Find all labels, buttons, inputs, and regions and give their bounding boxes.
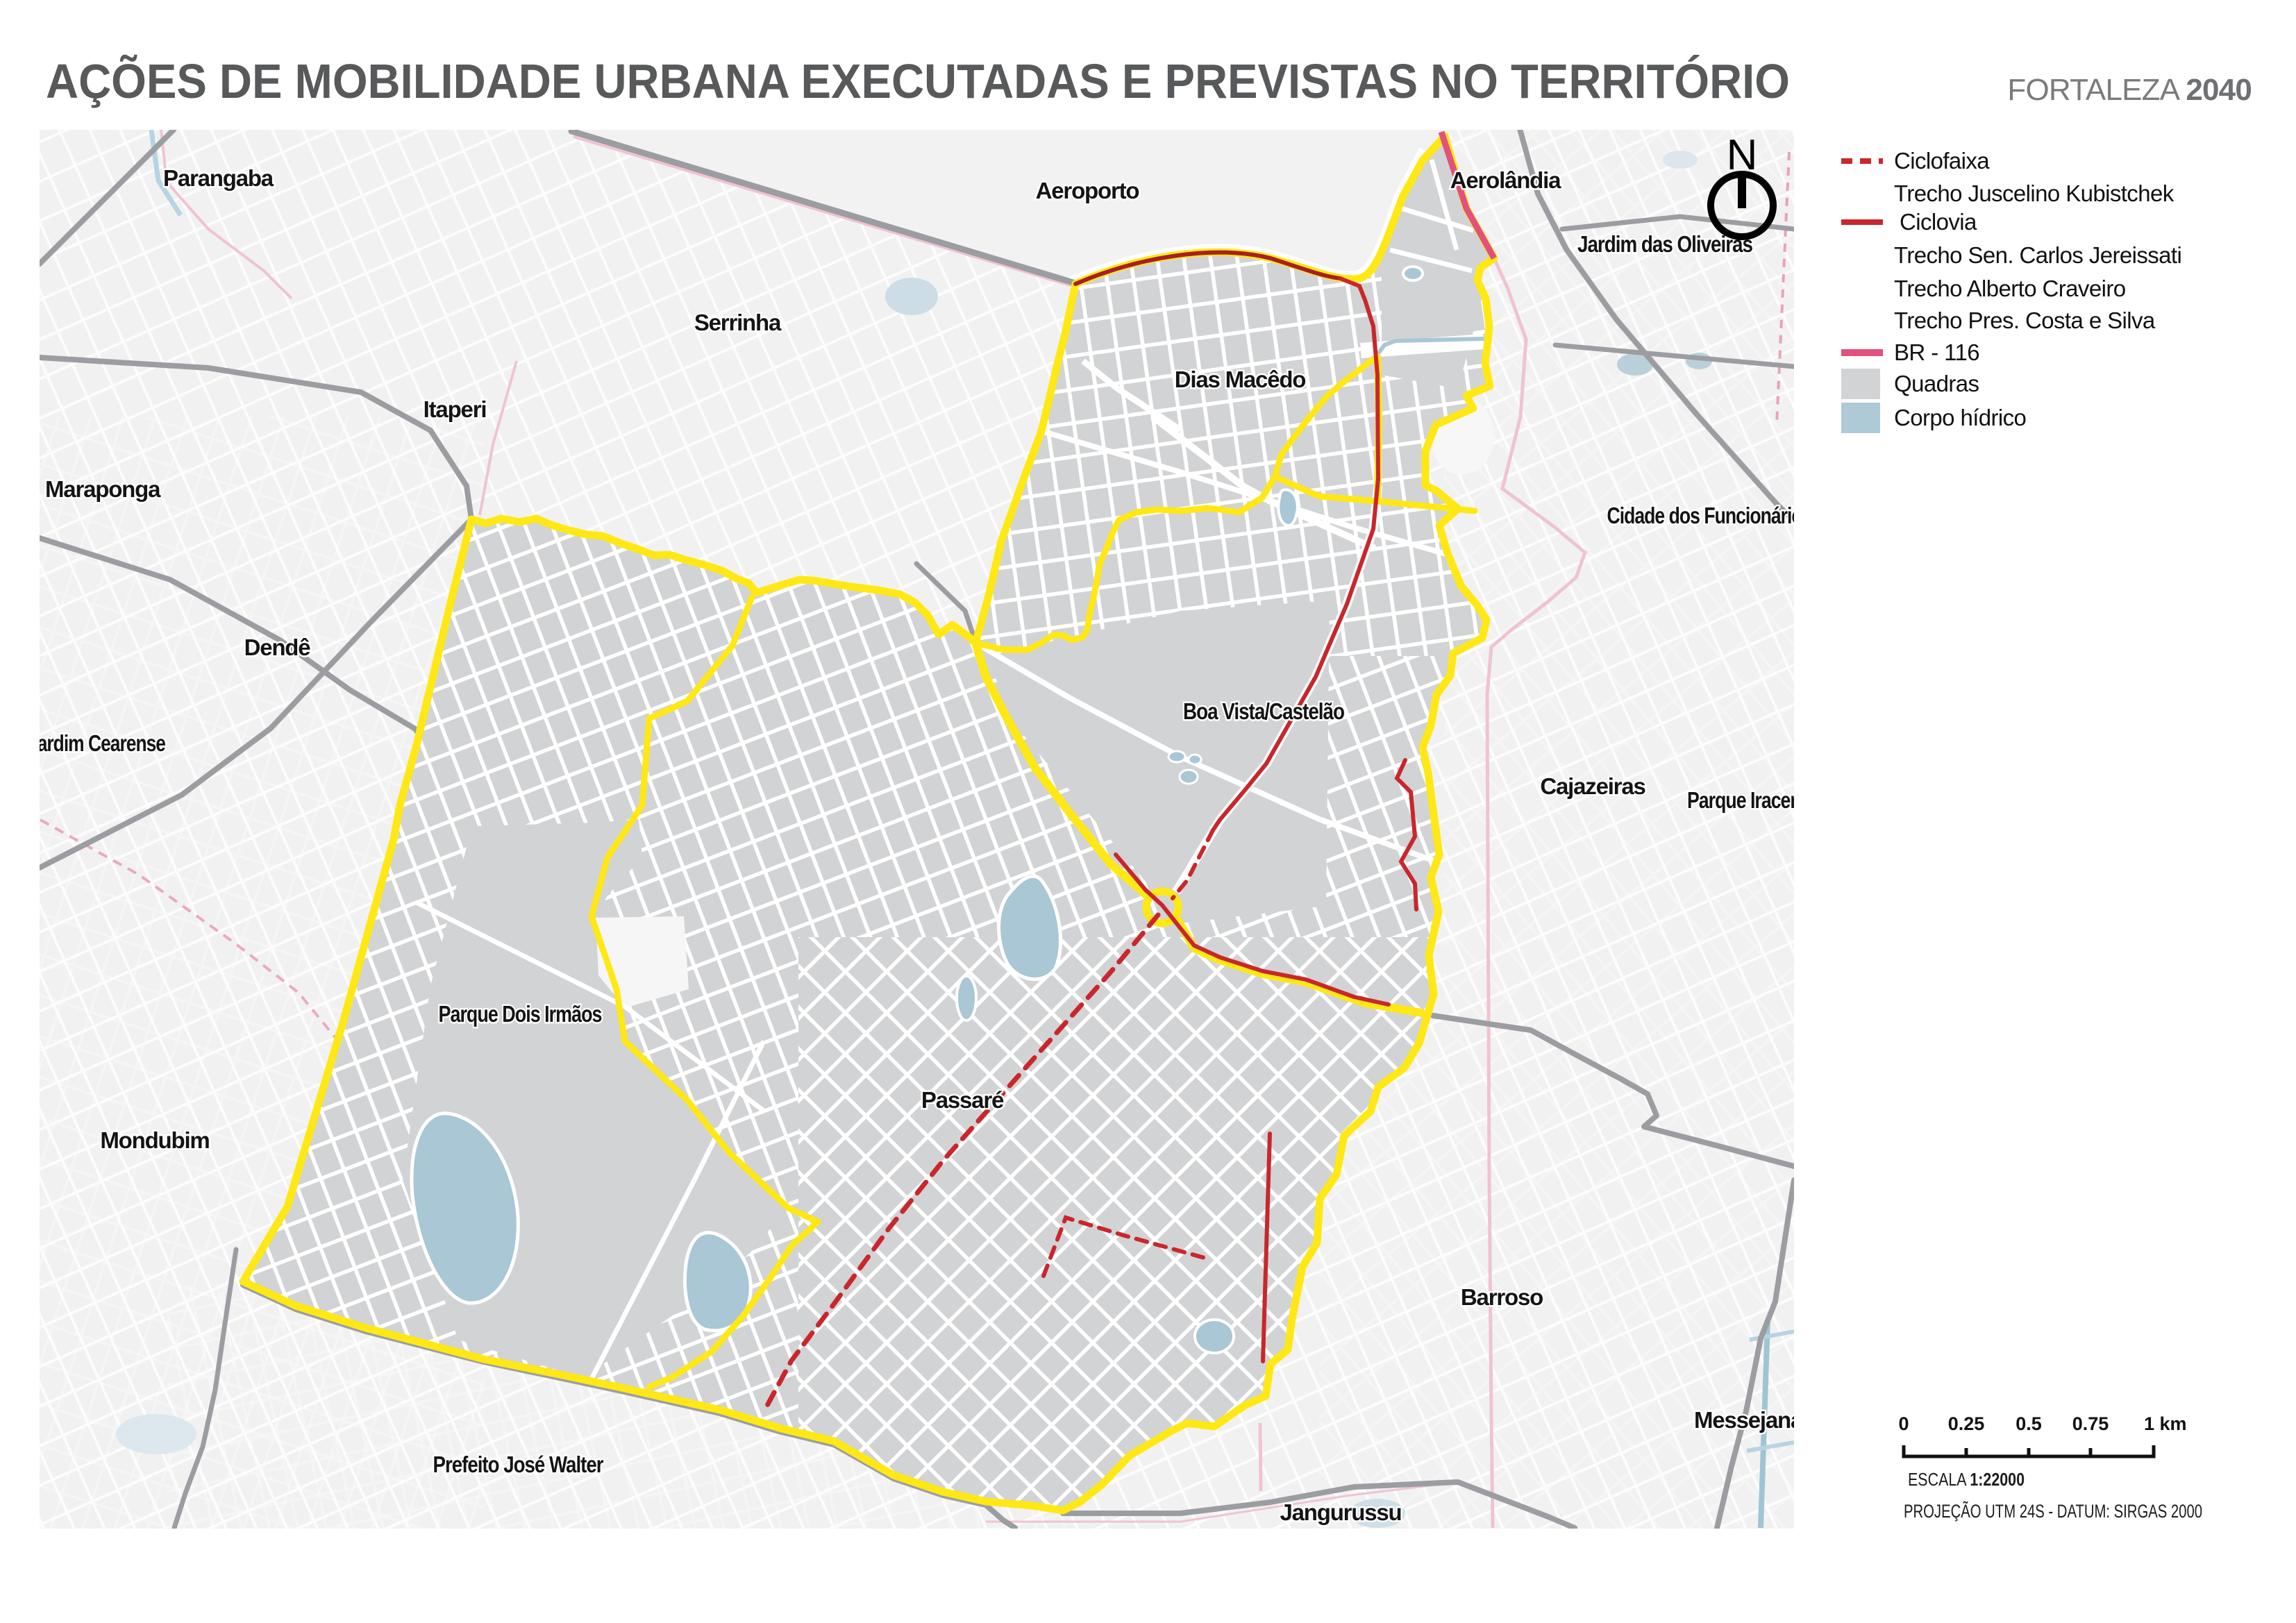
svg-text:N: N	[1727, 131, 1758, 179]
svg-text:AÇÕES DE MOBILIDADE URBANA EXE: AÇÕES DE MOBILIDADE URBANA EXECUTADAS E …	[46, 54, 1790, 108]
svg-text:Parangaba: Parangaba	[163, 165, 274, 191]
svg-text:0: 0	[1898, 1413, 1909, 1434]
svg-text:Mondubim: Mondubim	[100, 1127, 209, 1153]
svg-text:Dias Macêdo: Dias Macêdo	[1175, 367, 1306, 392]
svg-text:0.75: 0.75	[2072, 1413, 2109, 1434]
svg-text:Ciclofaixa: Ciclofaixa	[1894, 148, 1990, 174]
svg-text:Aerolândia: Aerolândia	[1450, 167, 1561, 193]
svg-text:Ciclovia: Ciclovia	[1900, 209, 1977, 235]
svg-text:Trecho Pres. Costa e Silva: Trecho Pres. Costa e Silva	[1894, 308, 2156, 333]
svg-text:ESCALA 1:22000: ESCALA 1:22000	[1908, 1469, 2025, 1490]
svg-text:Itaperi: Itaperi	[424, 396, 487, 422]
svg-text:Barroso: Barroso	[1461, 1284, 1543, 1310]
svg-text:Aeroporto: Aeroporto	[1036, 178, 1139, 203]
svg-text:Quadras: Quadras	[1894, 371, 1979, 396]
svg-text:BR - 116: BR - 116	[1894, 339, 1979, 365]
svg-text:0.25: 0.25	[1948, 1413, 1985, 1434]
svg-text:1 km: 1 km	[2144, 1413, 2187, 1434]
svg-text:Jardim Cearense: Jardim Cearense	[28, 730, 166, 756]
svg-text:PROJEÇÃO UTM 24S - DATUM: SIRG: PROJEÇÃO UTM 24S - DATUM: SIRGAS 2000	[1904, 1500, 2202, 1522]
svg-text:Dendê: Dendê	[244, 634, 311, 660]
svg-text:Jangurussu: Jangurussu	[1280, 1499, 1401, 1525]
svg-text:Passaré: Passaré	[921, 1087, 1004, 1113]
svg-text:Cidade dos Funcionários: Cidade dos Funcionários	[1607, 503, 1812, 528]
svg-text:Boa Vista/Castelão: Boa Vista/Castelão	[1183, 698, 1344, 724]
svg-text:Messejana: Messejana	[1694, 1407, 1804, 1433]
svg-text:Maraponga: Maraponga	[45, 476, 161, 502]
svg-text:Trecho Juscelino Kubistchek: Trecho Juscelino Kubistchek	[1894, 180, 2175, 206]
svg-text:Serrinha: Serrinha	[694, 310, 782, 335]
svg-text:Corpo hídrico: Corpo hídrico	[1894, 405, 2026, 430]
svg-text:Trecho Sen. Carlos Jereissati: Trecho Sen. Carlos Jereissati	[1894, 242, 2181, 268]
svg-text:Cajazeiras: Cajazeiras	[1540, 773, 1645, 799]
svg-text:Prefeito José Walter: Prefeito José Walter	[433, 1452, 604, 1477]
svg-text:Trecho Alberto Craveiro: Trecho Alberto Craveiro	[1894, 276, 2125, 301]
svg-text:Parque Dois Irmãos: Parque Dois Irmãos	[439, 1001, 602, 1027]
svg-text:0.5: 0.5	[2016, 1413, 2042, 1434]
svg-text:FORTALEZA 2040: FORTALEZA 2040	[2007, 73, 2252, 107]
